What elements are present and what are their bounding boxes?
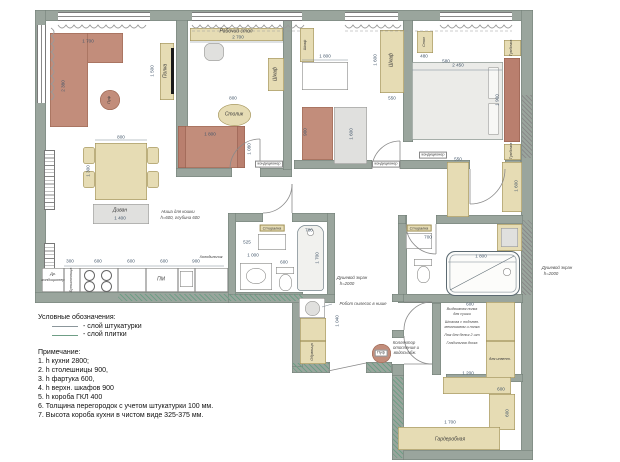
wall: [228, 213, 236, 303]
accent-wall: [504, 58, 520, 142]
plaster-layer-swatch-icon: [52, 326, 78, 327]
hall-cabinet: [300, 318, 326, 341]
burner-icon: [84, 270, 95, 281]
chair: [83, 147, 95, 164]
window: [345, 12, 398, 21]
wall: [398, 215, 406, 224]
plan-label: ПМ: [157, 278, 165, 283]
dimension-label: 800: [229, 97, 237, 102]
plan-label: Душевой экран: [337, 276, 368, 280]
wall: [283, 20, 292, 170]
legend-item: - слой плитки: [52, 331, 142, 340]
note-item: 5. h короба ГКЛ 400: [38, 393, 213, 402]
dimension-label: 580: [442, 60, 450, 65]
legend-title: Условные обозначения:: [38, 314, 142, 323]
dimension-label: 300: [66, 260, 74, 265]
plan-label: кондиционер: [372, 161, 400, 168]
plan-label: кондиционер: [255, 161, 283, 168]
plan-label: кондиционер: [42, 279, 65, 283]
notes-list: 1. h кухни 2800;2. h столешницы 900,3. h…: [38, 357, 213, 420]
plan-label: Робот пылесос в нише: [339, 302, 386, 306]
plan-label: Холодильник: [199, 256, 222, 260]
dimension-label: 600: [94, 260, 102, 265]
plan-label: Шкаф: [390, 53, 395, 67]
dining-table: [95, 143, 147, 200]
burner-icon: [101, 281, 112, 292]
plan-label: Тумбочка: [510, 143, 514, 160]
note-item: 4. h верхн. шкафов 900: [38, 384, 213, 393]
wall: [176, 168, 232, 177]
dimension-label: 1 300: [87, 165, 92, 177]
legend: Условные обозначения: - слой штукатурки …: [38, 314, 142, 340]
plan-label: Душевой экран: [542, 266, 573, 270]
plan-label: Стиралка: [407, 225, 432, 232]
tile-layer-swatch-icon: [52, 335, 78, 336]
plan-label: для инвент.: [489, 358, 511, 362]
plan-label: Люк для белья 2 шт: [444, 334, 479, 338]
plan-label: Шкаф: [274, 67, 279, 81]
notes-title: Примечание:: [38, 348, 213, 357]
dimension-label: 550: [454, 158, 462, 163]
tile-layer-hatch: [118, 294, 303, 301]
plan-label: Гардеробная: [435, 438, 465, 443]
dimension-label: 480: [420, 55, 428, 60]
dimension-label: 1 700: [82, 40, 94, 45]
desk-chair: [204, 43, 224, 61]
dimension-label: 600: [127, 260, 135, 265]
plan-label: h=2000: [544, 272, 558, 276]
desk: [302, 62, 348, 90]
sink-bowl: [501, 228, 518, 247]
chair: [147, 147, 159, 164]
note-item: 6. Толщина перегородок с учетом штукатур…: [38, 402, 213, 411]
fridge: [195, 268, 228, 292]
tile-layer-hatch: [293, 363, 329, 372]
dimension-label: 1 000: [247, 254, 259, 259]
plan-label: Бутылочница: [70, 268, 74, 293]
dimension-label: 1 600: [350, 128, 355, 140]
plan-label: механизмом и полка: [444, 326, 479, 330]
dimension-label: 600: [280, 261, 288, 266]
wall: [398, 215, 407, 303]
dimension-label: 1 040: [336, 315, 341, 327]
note-item: 2. h столешницы 900,: [38, 366, 213, 375]
dimension-label: 700: [305, 229, 313, 234]
dimension-label: 1 700: [444, 421, 456, 426]
plan-label: Стол: [423, 37, 427, 47]
plan-label: для сушки: [453, 313, 471, 317]
toilet: [417, 266, 430, 283]
dimension-label: 2 700: [232, 36, 244, 41]
dimension-label: 1 600: [374, 54, 379, 66]
dimension-label: 2 380: [62, 80, 67, 92]
note-item: 3. h фартука 600,: [38, 375, 213, 384]
plan-label: Пуф: [375, 350, 388, 357]
plan-label: Полка: [164, 64, 169, 78]
toilet-tank: [276, 267, 294, 274]
dimension-label: 700: [424, 236, 432, 241]
plan-label: h=600, глубина 600: [160, 216, 199, 220]
dimension-label: 525: [243, 241, 251, 246]
plan-label: Стиралка: [260, 225, 285, 232]
tv: [171, 48, 174, 94]
washing-machine: [258, 234, 286, 250]
note-item: 7. Высота короба кухни в чистом виде 325…: [38, 411, 213, 420]
kitchen-counter: [118, 268, 146, 292]
dimension-label: 600: [506, 409, 511, 417]
plan-label: h=2000: [340, 282, 354, 286]
wall: [432, 303, 441, 375]
floor-plan: Рабочий стол2 700Полка1 500Шкаф1 080Стол…: [0, 0, 620, 462]
dimension-label: 1 700: [316, 252, 321, 264]
kitchen-ceiling-accent-zone: [50, 33, 88, 127]
dimension-label: 1 400: [114, 217, 126, 222]
burner-icon: [101, 270, 112, 281]
dimension-label: 1 800: [319, 55, 331, 60]
window: [37, 25, 46, 103]
shaft-hatch: [522, 95, 532, 158]
shaft-hatch: [522, 220, 532, 295]
window: [192, 12, 302, 21]
wall: [392, 330, 404, 338]
dimension-label: 1 080: [248, 143, 253, 155]
dimension-label: 550: [388, 97, 396, 102]
toilet-tank: [414, 259, 432, 266]
pillow: [488, 103, 499, 135]
plan-label: Шкаф: [304, 40, 308, 51]
wall: [392, 364, 404, 376]
toilet: [279, 274, 292, 291]
dimension-label: 2 450: [452, 64, 464, 69]
burner-icon: [84, 281, 95, 292]
dimension-label: 1 900: [496, 94, 501, 106]
legend-item-label: - слой плитки: [83, 331, 127, 340]
chair: [147, 171, 159, 188]
plan-label: Диван: [113, 209, 127, 214]
plan-label: Столик: [225, 113, 243, 118]
dimension-label: 600: [497, 388, 505, 393]
plan-label: кондиционер: [419, 152, 447, 159]
dimension-label: 800: [117, 136, 125, 141]
kitchen-sink: [180, 271, 193, 287]
plan-label: Пуф: [108, 96, 112, 104]
dimension-label: 900: [192, 260, 200, 265]
hall-wardrobe: [447, 162, 469, 217]
window: [440, 12, 512, 21]
closet-unit: [489, 394, 515, 430]
wall: [392, 450, 533, 460]
bathtub-drain-icon: [503, 268, 511, 276]
wall: [392, 294, 404, 302]
window: [58, 12, 150, 21]
plan-label: Др.: [50, 273, 56, 277]
plan-label: Гладильная доска: [447, 342, 478, 346]
dimension-label: 900: [304, 128, 309, 136]
robot-vacuum: [305, 301, 320, 316]
laundry-wardrobe: [486, 302, 515, 341]
plan-label: водоснабж.: [394, 351, 417, 355]
radiator: [44, 150, 55, 210]
dimension-label: 1 600: [515, 180, 520, 192]
plan-label: Обувница: [311, 343, 315, 360]
dimension-label: 1 200: [462, 372, 474, 377]
notes: Примечание: 1. h кухни 2800;2. h столешн…: [38, 348, 213, 420]
sofa-armrest: [237, 126, 245, 168]
sofa-armrest: [178, 126, 186, 168]
dimension-label: 600: [160, 260, 168, 265]
note-item: 1. h кухни 2800;: [38, 357, 213, 366]
dimension-label: 1 800: [475, 255, 487, 260]
dimension-label: 1 800: [204, 133, 216, 138]
tile-layer-hatch: [367, 363, 391, 372]
legend-item-label: - слой штукатурки: [83, 323, 142, 332]
plan-label: Ниша для кошки: [161, 210, 194, 214]
dimension-label: 1 500: [151, 65, 156, 77]
legend-item: - слой штукатурки: [52, 323, 142, 332]
wall: [327, 213, 335, 303]
plan-label: Тумбочка: [510, 40, 514, 57]
sink-bowl: [246, 268, 266, 284]
